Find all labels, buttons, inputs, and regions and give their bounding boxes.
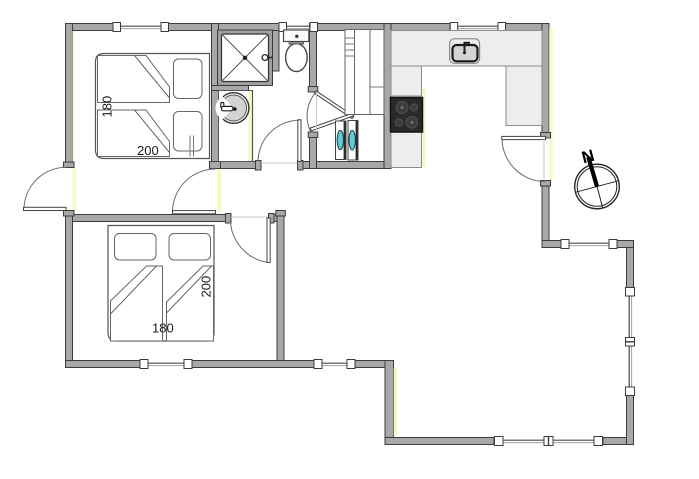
svg-text:180: 180 bbox=[152, 321, 174, 336]
svg-text:200: 200 bbox=[199, 276, 214, 298]
svg-text:180: 180 bbox=[100, 96, 115, 118]
svg-text:200: 200 bbox=[137, 143, 159, 158]
